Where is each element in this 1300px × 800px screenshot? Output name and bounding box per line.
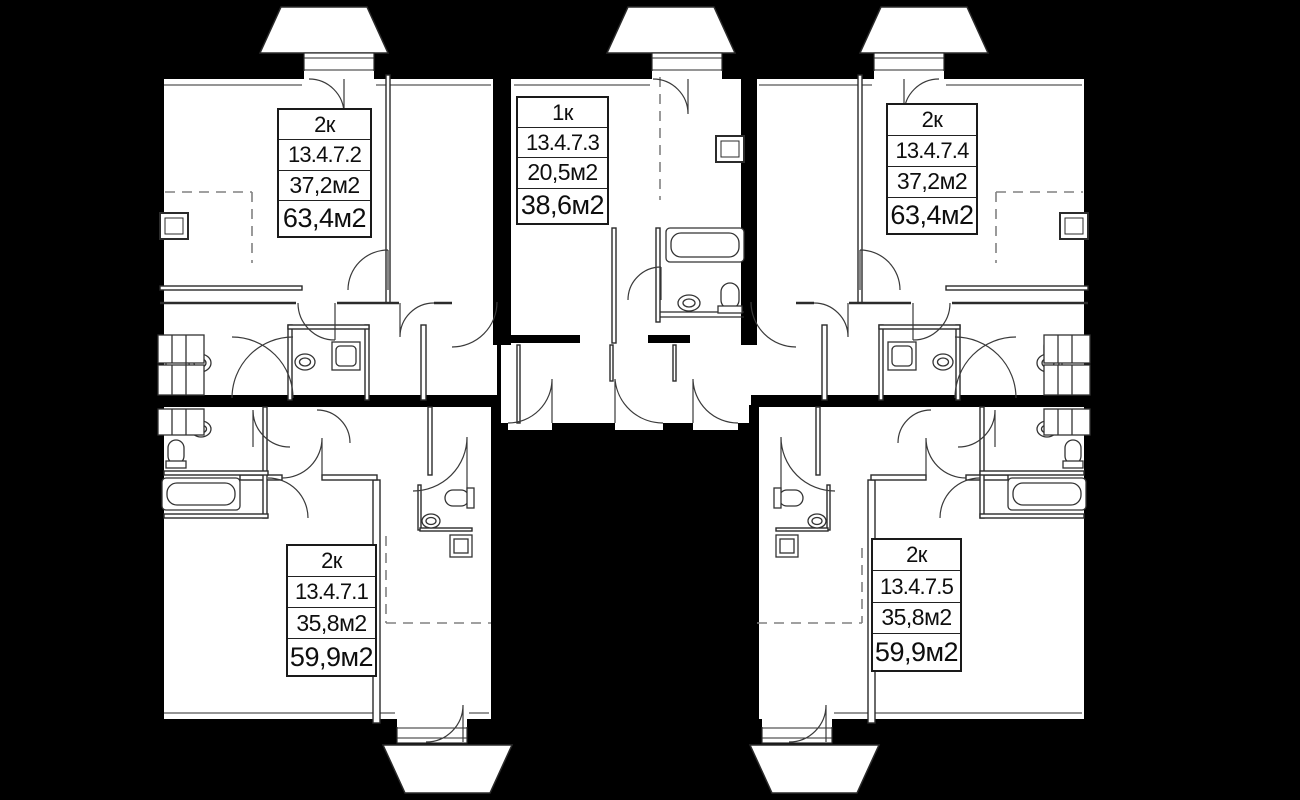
unit-total-area: 59,9м2 <box>288 638 375 675</box>
unit-number: 13.4.7.2 <box>279 139 370 169</box>
unit-card-top-left: 2к 13.4.7.2 37,2м2 63,4м2 <box>277 108 372 238</box>
unit-card-bottom-right: 2к 13.4.7.5 35,8м2 59,9м2 <box>871 538 962 672</box>
unit-type-label: 2к <box>888 105 976 135</box>
unit-type-label: 1к <box>518 98 607 127</box>
unit-number: 13.4.7.4 <box>888 135 976 166</box>
unit-living-area: 35,8м2 <box>288 607 375 638</box>
unit-card-top-center: 1к 13.4.7.3 20,5м2 38,6м2 <box>516 96 609 225</box>
unit-number: 13.4.7.5 <box>873 570 960 601</box>
floor-plan: 2к 13.4.7.2 37,2м2 63,4м2 1к 13.4.7.3 20… <box>0 0 1300 800</box>
floor-plan-drawing <box>0 0 1300 800</box>
unit-total-area: 63,4м2 <box>279 200 370 236</box>
unit-living-area: 37,2м2 <box>888 166 976 197</box>
unit-number: 13.4.7.1 <box>288 576 375 607</box>
unit-type-label: 2к <box>288 546 375 576</box>
unit-total-area: 63,4м2 <box>888 197 976 233</box>
unit-type-label: 2к <box>279 110 370 139</box>
unit-card-top-right: 2к 13.4.7.4 37,2м2 63,4м2 <box>886 103 978 235</box>
unit-number: 13.4.7.3 <box>518 127 607 157</box>
unit-total-area: 59,9м2 <box>873 633 960 670</box>
unit-living-area: 20,5м2 <box>518 157 607 187</box>
unit-living-area: 37,2м2 <box>279 170 370 200</box>
unit-type-label: 2к <box>873 540 960 570</box>
unit-card-bottom-left: 2к 13.4.7.1 35,8м2 59,9м2 <box>286 544 377 677</box>
unit-total-area: 38,6м2 <box>518 188 607 223</box>
corridor-floor <box>501 343 755 425</box>
unit-living-area: 35,8м2 <box>873 602 960 633</box>
